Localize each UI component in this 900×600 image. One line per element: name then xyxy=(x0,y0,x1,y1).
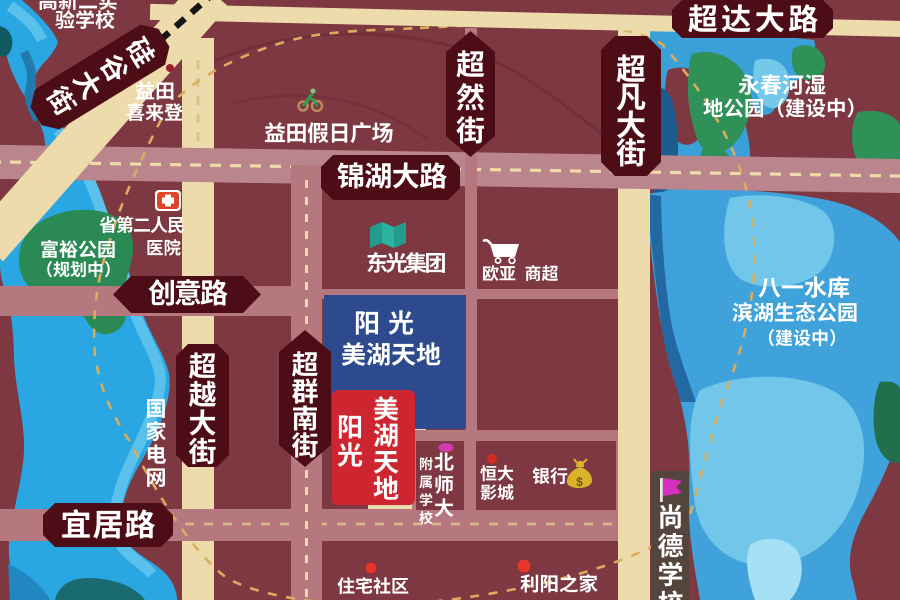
svg-text:$: $ xyxy=(576,477,583,489)
